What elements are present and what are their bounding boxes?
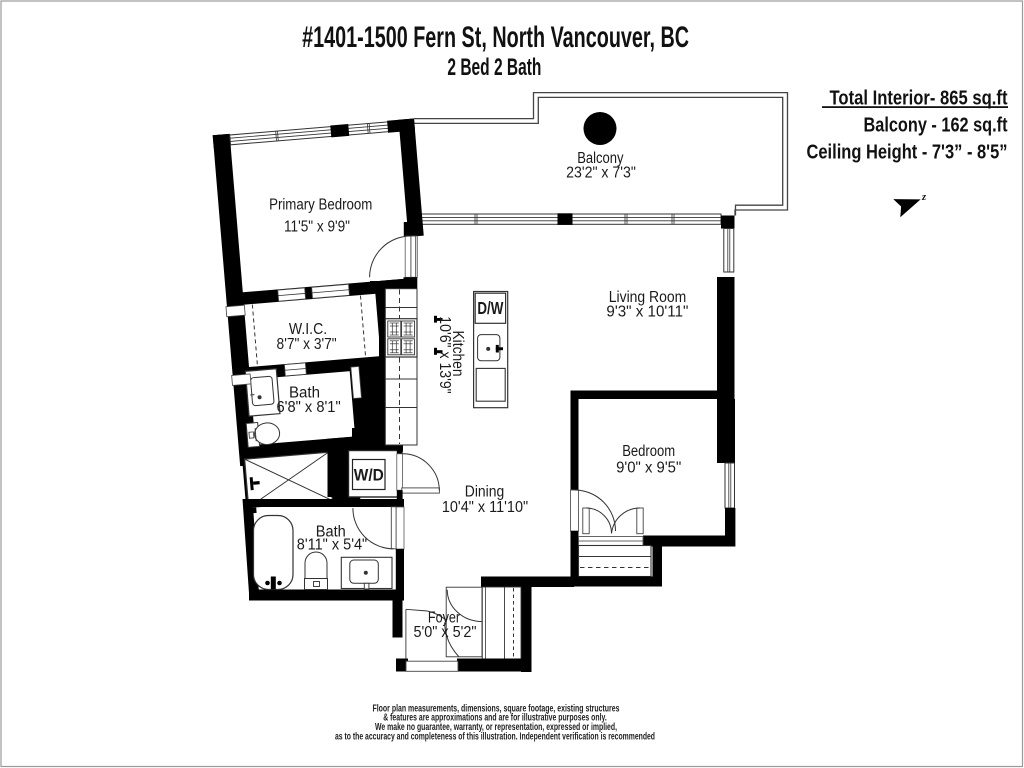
svg-text:Balcony - 162 sq.ft: Balcony - 162 sq.ft — [864, 115, 1008, 137]
svg-text:8'11" x 5'4": 8'11" x 5'4" — [297, 537, 367, 554]
svg-text:#1401-1500 Fern St, North Vanc: #1401-1500 Fern St, North Vancouver, BC — [302, 21, 689, 54]
svg-text:9'3" x 10'11": 9'3" x 10'11" — [606, 304, 688, 321]
svg-text:Primary Bedroom: Primary Bedroom — [269, 197, 372, 214]
svg-text:11'5" x 9'9": 11'5" x 9'9" — [284, 219, 350, 236]
svg-text:9'0" x 9'5": 9'0" x 9'5" — [616, 459, 681, 476]
svg-text:10'6" x 13'9": 10'6" x 13'9" — [436, 316, 453, 393]
svg-text:D/W: D/W — [477, 298, 503, 318]
svg-text:6'8" x 8'1": 6'8" x 8'1" — [277, 399, 341, 416]
svg-text:Ceiling Height - 7'3” - 8'5”: Ceiling Height - 7'3” - 8'5” — [807, 141, 1008, 163]
svg-text:23'2" x 7'3": 23'2" x 7'3" — [566, 164, 636, 181]
svg-text:Bedroom: Bedroom — [622, 443, 675, 460]
svg-text:W/D: W/D — [354, 466, 384, 485]
svg-text:10'4" x 11'10": 10'4" x 11'10" — [442, 499, 528, 516]
svg-text:as to the accuracy and complet: as to the accuracy and completeness of t… — [335, 731, 655, 742]
svg-text:2 Bed 2 Bath: 2 Bed 2 Bath — [447, 54, 541, 81]
svg-text:8'7" x 3'7": 8'7" x 3'7" — [277, 336, 337, 353]
svg-text:5'0" x 5'2": 5'0" x 5'2" — [413, 624, 476, 641]
